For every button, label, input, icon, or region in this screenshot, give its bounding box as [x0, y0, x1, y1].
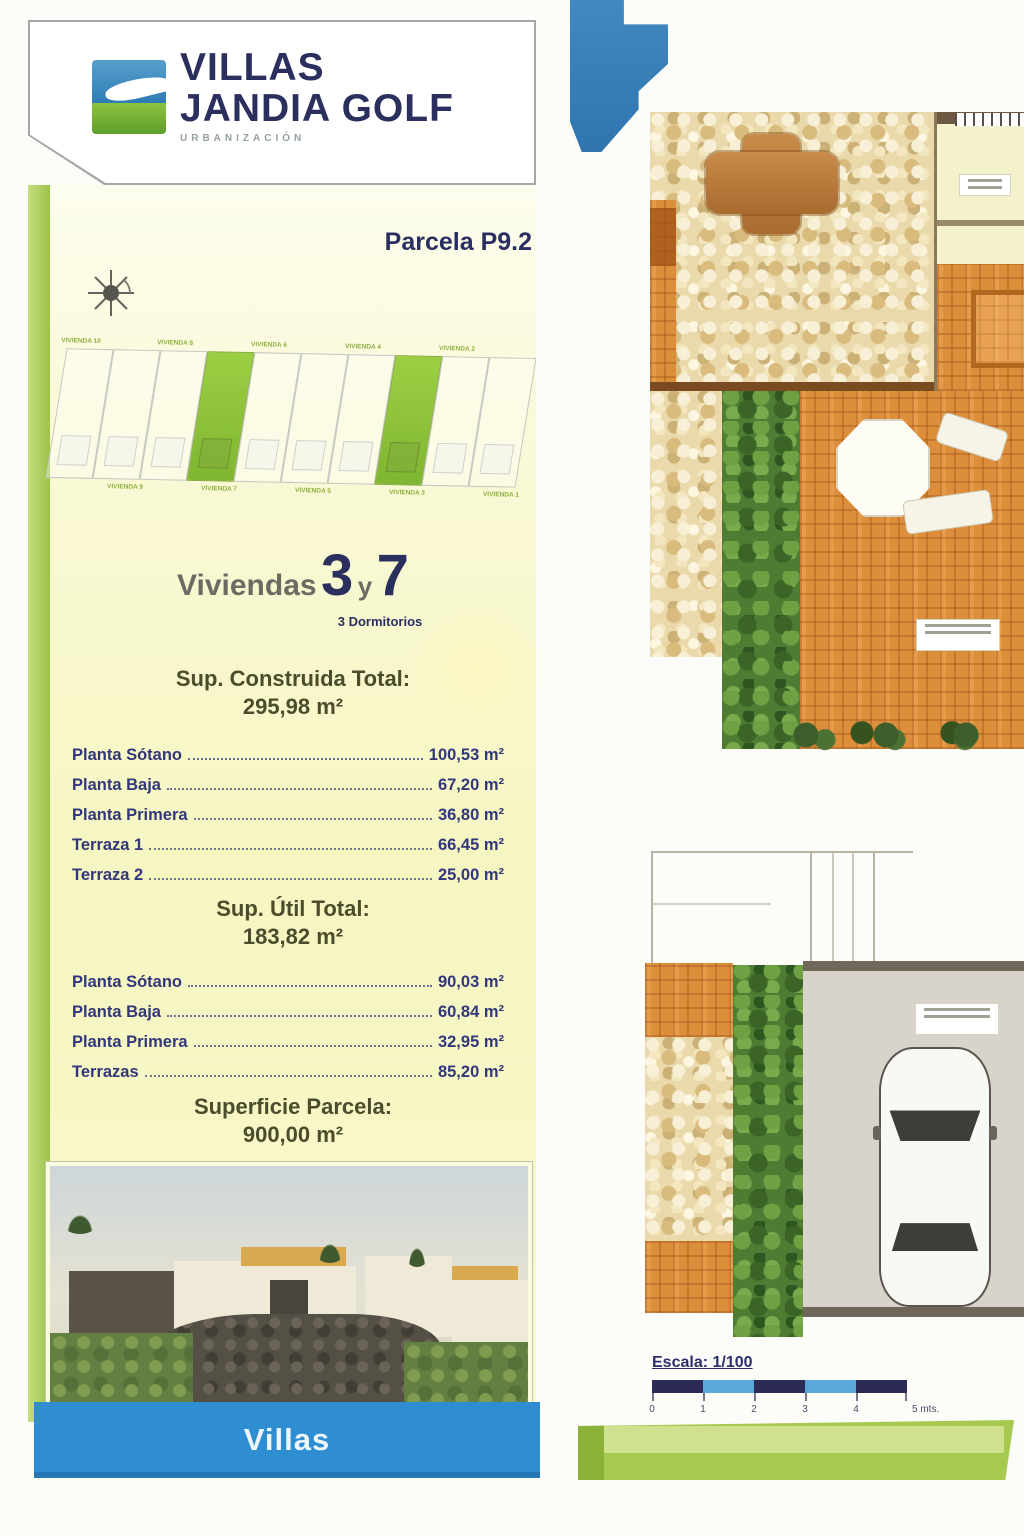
brand-line1: VILLAS	[180, 48, 454, 89]
tiled-terrace	[800, 391, 1024, 749]
hedge	[722, 391, 800, 749]
scale-tick: 2	[751, 1404, 757, 1415]
hedge	[733, 965, 803, 1337]
villa-render-photo	[46, 1162, 532, 1408]
table-row: Terraza 1 66,45 m²	[72, 825, 504, 855]
interior-room	[934, 112, 1024, 391]
shrubs	[790, 712, 1024, 758]
useful-area-title: Sup. Útil Total:	[50, 896, 536, 922]
table-row: Planta Baja 60,84 m²	[72, 992, 504, 1022]
built-area-title: Sup. Construida Total:	[50, 666, 536, 692]
table-row: Planta Sótano 90,03 m²	[72, 962, 504, 992]
terrace-floor-plan	[650, 112, 1024, 762]
brand-subtitle: URBANIZACIÓN	[180, 134, 454, 144]
scale-tick: 0	[649, 1404, 655, 1415]
wall-divider	[650, 382, 936, 391]
footer-category-bar: Villas	[34, 1402, 540, 1478]
planter	[971, 290, 1024, 368]
unit-number-7: 7	[377, 543, 409, 608]
built-area-table: Planta Sótano 100,53 m² Planta Baja 67,2…	[72, 735, 504, 885]
table-row: Planta Baja 67,20 m²	[72, 765, 504, 795]
scale-tick: 4	[853, 1404, 859, 1415]
table-row: Planta Primera 36,80 m²	[72, 795, 504, 825]
scale-label: Escala: 1/100	[652, 1354, 753, 1372]
table-row: Terrazas 85,20 m²	[72, 1052, 504, 1082]
scale-tick: 1	[700, 1404, 706, 1415]
built-area-total: 295,98 m²	[50, 694, 536, 720]
scale-tick: 3	[802, 1404, 808, 1415]
footer-label: Villas	[244, 1422, 330, 1458]
car-top-view	[879, 1047, 991, 1307]
terrace-area-label	[916, 619, 1000, 651]
header-box: VILLAS JANDIA GOLF URBANIZACIÓN	[28, 20, 536, 185]
compass-icon	[84, 266, 138, 320]
unit-headline: Viviendas 3 y 7	[50, 542, 536, 609]
table-row: Terraza 2 25,00 m²	[72, 855, 504, 885]
parcel-area-value: 900,00 m²	[50, 1122, 536, 1148]
garage-area	[803, 961, 1024, 1317]
garage-floor-plan	[645, 845, 1024, 1337]
parcel-area-title: Superficie Parcela:	[50, 1094, 536, 1120]
green-ribbon-decoration	[578, 1420, 1014, 1480]
table-row: Planta Primera 32,95 m²	[72, 1022, 504, 1052]
room-area-label	[959, 174, 1011, 196]
site-plan-diagram: VIVIENDA 10 VIVIENDA 9 VIVIENDA 8 VIVIEN…	[56, 338, 530, 510]
useful-area-total: 183,82 m²	[50, 924, 536, 950]
table-row: Planta Sótano 100,53 m²	[72, 735, 504, 765]
scale-bar	[652, 1380, 907, 1393]
brochure-page: VILLAS JANDIA GOLF URBANIZACIÓN Parcela …	[0, 0, 1024, 1536]
brand-logo-icon	[92, 60, 166, 134]
useful-area-table: Planta Sótano 90,03 m² Planta Baja 60,84…	[72, 962, 504, 1082]
stone-path	[645, 1037, 733, 1241]
brand-wordmark: VILLAS JANDIA GOLF URBANIZACIÓN	[180, 48, 454, 144]
unit-number-3: 3	[321, 543, 353, 608]
brand-line2: JANDIA GOLF	[180, 89, 454, 130]
parcel-title: Parcela P9.2	[250, 228, 532, 257]
window	[955, 113, 1024, 126]
scale-tick: 5 mts.	[912, 1404, 939, 1415]
garage-area-label	[915, 1003, 999, 1035]
lounge-chair	[935, 411, 1010, 462]
